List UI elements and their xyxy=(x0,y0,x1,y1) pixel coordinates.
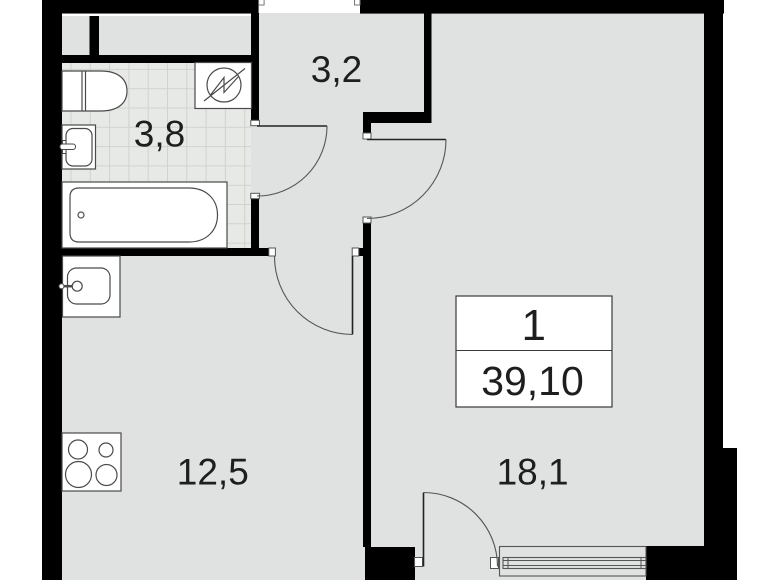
svg-text:3,8: 3,8 xyxy=(134,114,185,155)
svg-text:39,10: 39,10 xyxy=(481,358,584,404)
svg-text:3,2: 3,2 xyxy=(311,49,362,90)
svg-text:1: 1 xyxy=(522,301,546,350)
svg-text:18,1: 18,1 xyxy=(497,452,569,493)
svg-text:12,5: 12,5 xyxy=(177,452,249,493)
